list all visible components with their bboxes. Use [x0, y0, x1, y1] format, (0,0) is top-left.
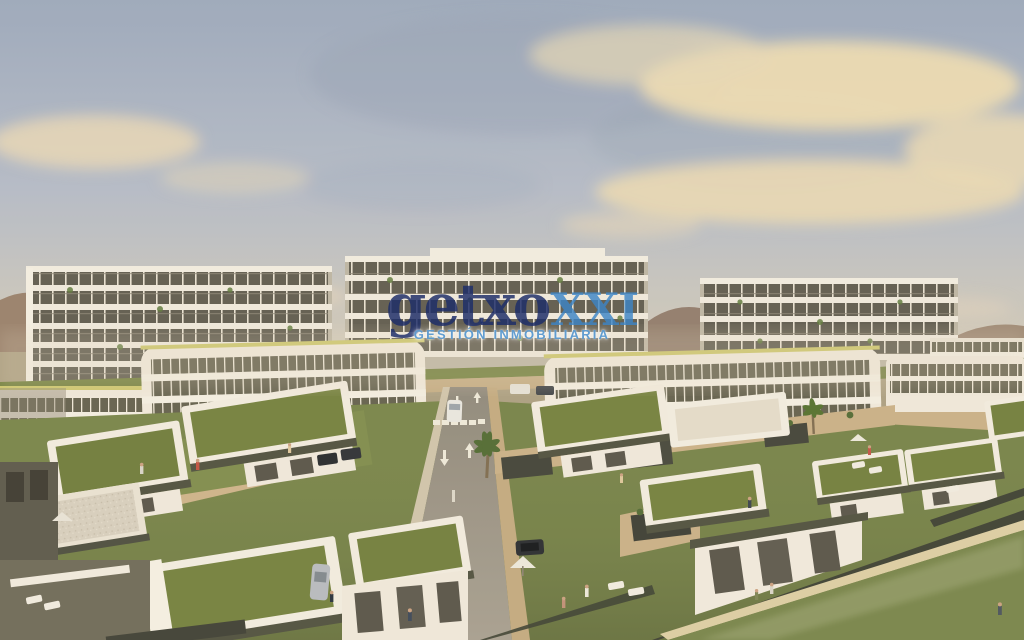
screenshot-root: getxoXXI GESTIÓN INMOBILIARIA [0, 0, 1024, 640]
warm-light-overlay [0, 0, 1024, 640]
horizon-haze [0, 330, 1024, 390]
render-scene [0, 0, 1024, 640]
